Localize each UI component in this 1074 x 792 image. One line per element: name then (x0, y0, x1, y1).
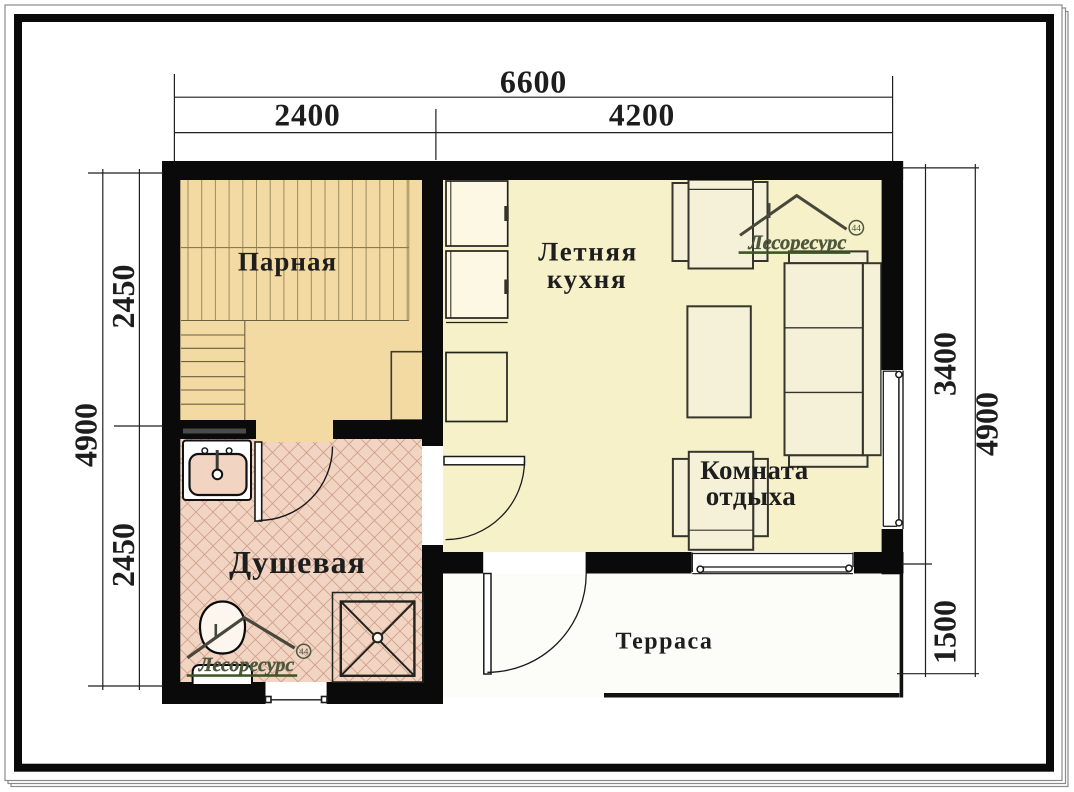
svg-text:44: 44 (299, 647, 309, 657)
svg-text:4900: 4900 (969, 392, 1005, 456)
svg-text:4900: 4900 (68, 403, 104, 467)
svg-text:4200: 4200 (609, 98, 675, 133)
svg-text:2450: 2450 (105, 523, 141, 587)
svg-text:2450: 2450 (105, 265, 141, 329)
svg-text:Лесоресурс: Лесоресурс (198, 654, 295, 676)
svg-text:Душевая: Душевая (229, 544, 366, 580)
svg-text:6600: 6600 (500, 63, 567, 99)
svg-text:44: 44 (852, 224, 862, 234)
svg-text:кухня: кухня (547, 264, 627, 294)
svg-text:Терраса: Терраса (616, 628, 714, 654)
svg-text:1500: 1500 (927, 600, 963, 664)
svg-text:Летняя: Летняя (538, 237, 638, 267)
svg-text:отдыха: отдыха (706, 481, 796, 511)
svg-text:2400: 2400 (274, 98, 340, 133)
svg-text:Лесоресурс: Лесоресурс (748, 232, 847, 254)
svg-text:Парная: Парная (238, 247, 337, 277)
svg-text:3400: 3400 (927, 332, 963, 396)
